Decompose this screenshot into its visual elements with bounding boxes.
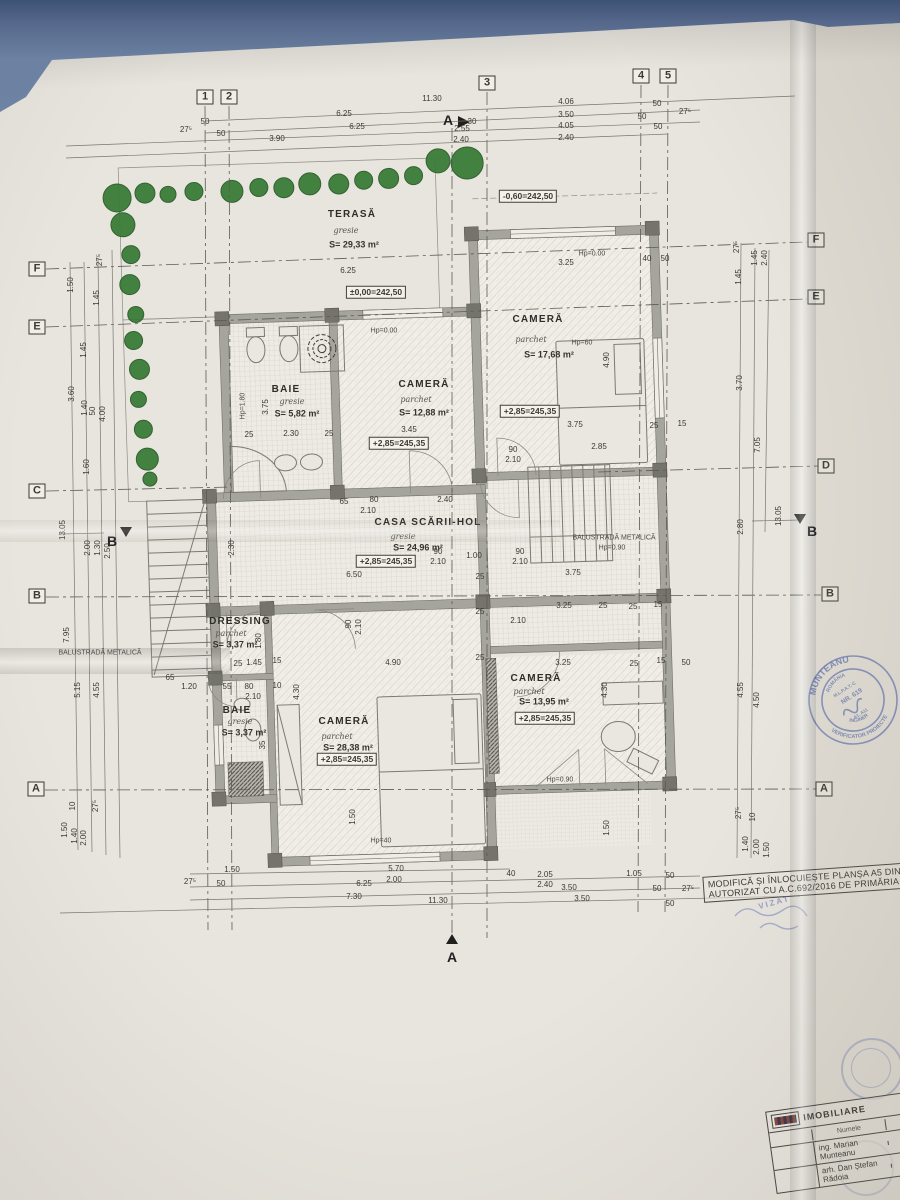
hall-floor [216, 494, 489, 607]
building-plan [102, 141, 679, 872]
tree-icon [298, 173, 321, 196]
svg-text:MUNTEANU: MUNTEANU [799, 650, 858, 700]
tree-icon [135, 183, 156, 204]
titleblock-sign-cell [887, 1131, 900, 1145]
paper-sheet: MUNTEANU VERIFICATOR PROIECTE ROMÂNIA IN… [0, 0, 900, 1200]
tree-icon [378, 168, 399, 189]
tree-icon [129, 359, 150, 380]
hall-floor-2 [485, 475, 662, 650]
tree-icon [130, 391, 146, 407]
tree-icon [250, 178, 269, 197]
floor-plan-drawing: MUNTEANU VERIFICATOR PROIECTE ROMÂNIA IN… [0, 0, 900, 1200]
photo-of-floor-plan: MUNTEANU VERIFICATOR PROIECTE ROMÂNIA IN… [0, 0, 900, 1200]
tree-icon [122, 245, 141, 264]
titleblock-role-cell [772, 1146, 816, 1166]
faint-round-stamp-inner [851, 1048, 891, 1088]
tree-icon [134, 420, 153, 439]
tree-icon [221, 180, 244, 203]
tree-icon [185, 182, 204, 201]
tree-icon [103, 184, 132, 213]
roof-projection-line [472, 193, 657, 199]
tree-icon [328, 174, 349, 195]
room2-floor [336, 315, 476, 489]
stamp-name: MUNTEANU [799, 650, 858, 700]
tree-icon [136, 448, 159, 471]
verifier-stamp: MUNTEANU VERIFICATOR PROIECTE ROMÂNIA IN… [791, 637, 900, 760]
titleblock-sign-cell-2 [891, 1154, 900, 1168]
tree-icon [274, 177, 295, 198]
tree-icon [354, 171, 373, 190]
porch-floor [495, 790, 652, 850]
tree-icon [124, 331, 143, 350]
company-logo-icon [771, 1111, 801, 1129]
tree-icon [426, 149, 451, 174]
plan-graphics: MUNTEANU VERIFICATOR PROIECTE ROMÂNIA IN… [0, 0, 900, 1200]
tree-icon [451, 146, 484, 179]
tree-icon [128, 306, 144, 322]
handwriting-scribble [735, 906, 807, 929]
tree-icon [404, 166, 423, 185]
tree-icon [143, 472, 157, 486]
titleblock-role-cell-2 [775, 1169, 819, 1189]
tree-icon [160, 186, 176, 202]
tree-icon [111, 212, 136, 237]
exterior-stair [147, 499, 212, 677]
tree-icon [120, 274, 141, 295]
